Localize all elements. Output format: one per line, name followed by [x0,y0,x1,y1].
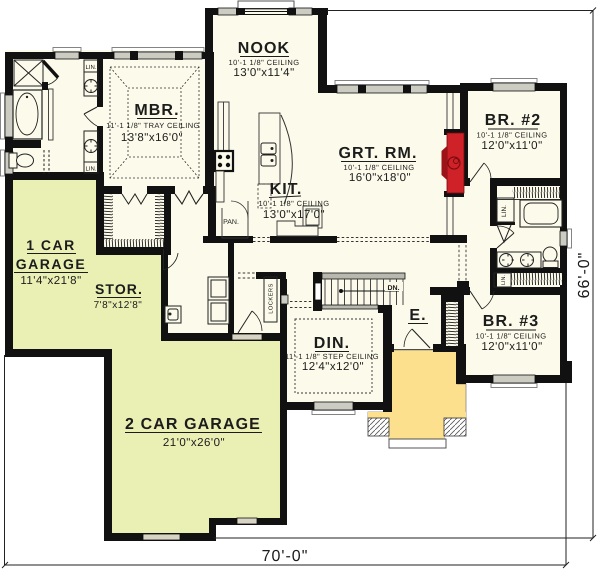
svg-text:NOOK: NOOK [238,40,290,57]
svg-text:21'0"x26'0": 21'0"x26'0" [163,437,225,449]
svg-text:LIN.: LIN. [85,64,96,71]
svg-text:10'-1 1/8" CEILING: 10'-1 1/8" CEILING [259,199,330,208]
svg-text:13'8"x16'0": 13'8"x16'0" [121,132,183,144]
svg-text:10'-1 1/8" CEILING: 10'-1 1/8" CEILING [477,131,548,140]
svg-text:GARAGE: GARAGE [16,256,86,272]
svg-text:12'0"x11'0": 12'0"x11'0" [481,140,542,152]
svg-text:DN.: DN. [387,285,399,292]
svg-text:E.: E. [409,307,426,324]
svg-text:MBR.: MBR. [134,102,179,119]
svg-text:DIN.: DIN. [314,335,350,352]
svg-text:BR. #3: BR. #3 [483,313,539,330]
svg-text:LIN.: LIN. [501,205,508,217]
svg-text:LOCKERS: LOCKERS [268,283,275,314]
svg-text:11'-1 1/8" STEP CEILING: 11'-1 1/8" STEP CEILING [285,352,379,361]
svg-text:LIN.: LIN. [85,166,96,173]
svg-text:12'4"x12'0": 12'4"x12'0" [302,361,364,373]
svg-text:66'-0": 66'-0" [576,252,593,299]
svg-text:STOR.: STOR. [95,281,143,297]
svg-text:11'-1 1/8" TRAY CEILING: 11'-1 1/8" TRAY CEILING [106,121,200,130]
svg-text:10'-1 1/8" CEILING: 10'-1 1/8" CEILING [229,58,300,67]
svg-text:16'0"x18'0": 16'0"x18'0" [349,172,411,184]
svg-text:70'-0": 70'-0" [262,548,309,565]
svg-text:10'-1 1/8" CEILING: 10'-1 1/8" CEILING [476,332,547,341]
svg-text:LIN.: LIN. [501,274,507,285]
svg-text:13'0"x17'0": 13'0"x17'0" [263,209,325,221]
svg-text:2 CAR GARAGE: 2 CAR GARAGE [125,416,261,433]
svg-text:GRT. RM.: GRT. RM. [338,145,417,162]
svg-text:BR. #2: BR. #2 [485,112,541,129]
svg-text:13'0"x11'4": 13'0"x11'4" [233,67,294,79]
svg-text:1 CAR: 1 CAR [26,237,76,253]
svg-text:7'8"x12'8": 7'8"x12'8" [94,300,143,311]
svg-text:12'0"x11'0": 12'0"x11'0" [481,341,542,353]
svg-text:KIT.: KIT. [270,181,303,198]
svg-text:10'-1 1/8" CEILING: 10'-1 1/8" CEILING [344,163,415,172]
svg-text:PAN.: PAN. [223,219,239,226]
svg-text:11'4"x21'8": 11'4"x21'8" [20,275,81,287]
